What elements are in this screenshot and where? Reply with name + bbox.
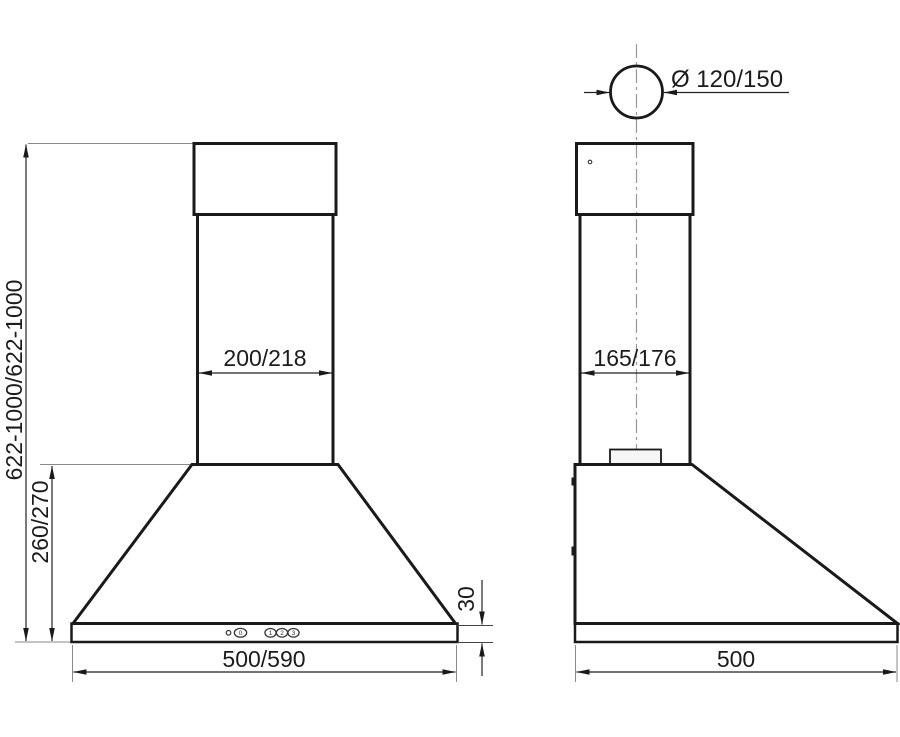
- dimension-drawing-page: 622-1000/622-1000 260/270 200/218 0 1 2 …: [0, 0, 900, 737]
- speed-2-button-label: 2: [280, 630, 284, 637]
- hood-height-dim-label: 260/270: [27, 480, 53, 563]
- front-width-dim-label: 500/590: [222, 646, 305, 672]
- chimney-depth-dim-label: 165/176: [593, 345, 676, 371]
- wall-tab-lower: [572, 547, 576, 556]
- off-button-label: 0: [239, 630, 243, 637]
- side-base-strip: [575, 624, 898, 643]
- diameter-dim-label: Ø 120/150: [671, 66, 783, 93]
- wall-tab-upper: [572, 478, 576, 486]
- chimney-width-dim-label: 200/218: [223, 345, 306, 371]
- indicator-light: [226, 631, 231, 636]
- mounting-screw-dot: [588, 160, 592, 164]
- front-chimney-upper-section: [194, 144, 336, 215]
- front-chimney-lower-section: [198, 215, 334, 465]
- overall-height-dim-label: 622-1000/622-1000: [1, 280, 27, 481]
- control-panel: 0 1 2 3: [226, 628, 299, 637]
- side-chimney-lower-section: [580, 215, 690, 465]
- speed-3-button-label: 3: [292, 630, 296, 637]
- strip-height-dim-label: 30: [453, 586, 479, 612]
- outlet-collar-detail: [610, 450, 661, 465]
- hood-dimension-drawing: 622-1000/622-1000 260/270 200/218 0 1 2 …: [0, 0, 900, 737]
- side-view: Ø 120/150 165/176 500: [572, 44, 898, 682]
- front-view: 622-1000/622-1000 260/270 200/218 0 1 2 …: [1, 144, 493, 683]
- front-canopy: [73, 465, 456, 624]
- side-canopy: [575, 465, 898, 624]
- side-depth-dim-label: 500: [717, 646, 755, 672]
- side-chimney-upper-section: [577, 144, 694, 215]
- speed-1-button-label: 1: [269, 630, 273, 637]
